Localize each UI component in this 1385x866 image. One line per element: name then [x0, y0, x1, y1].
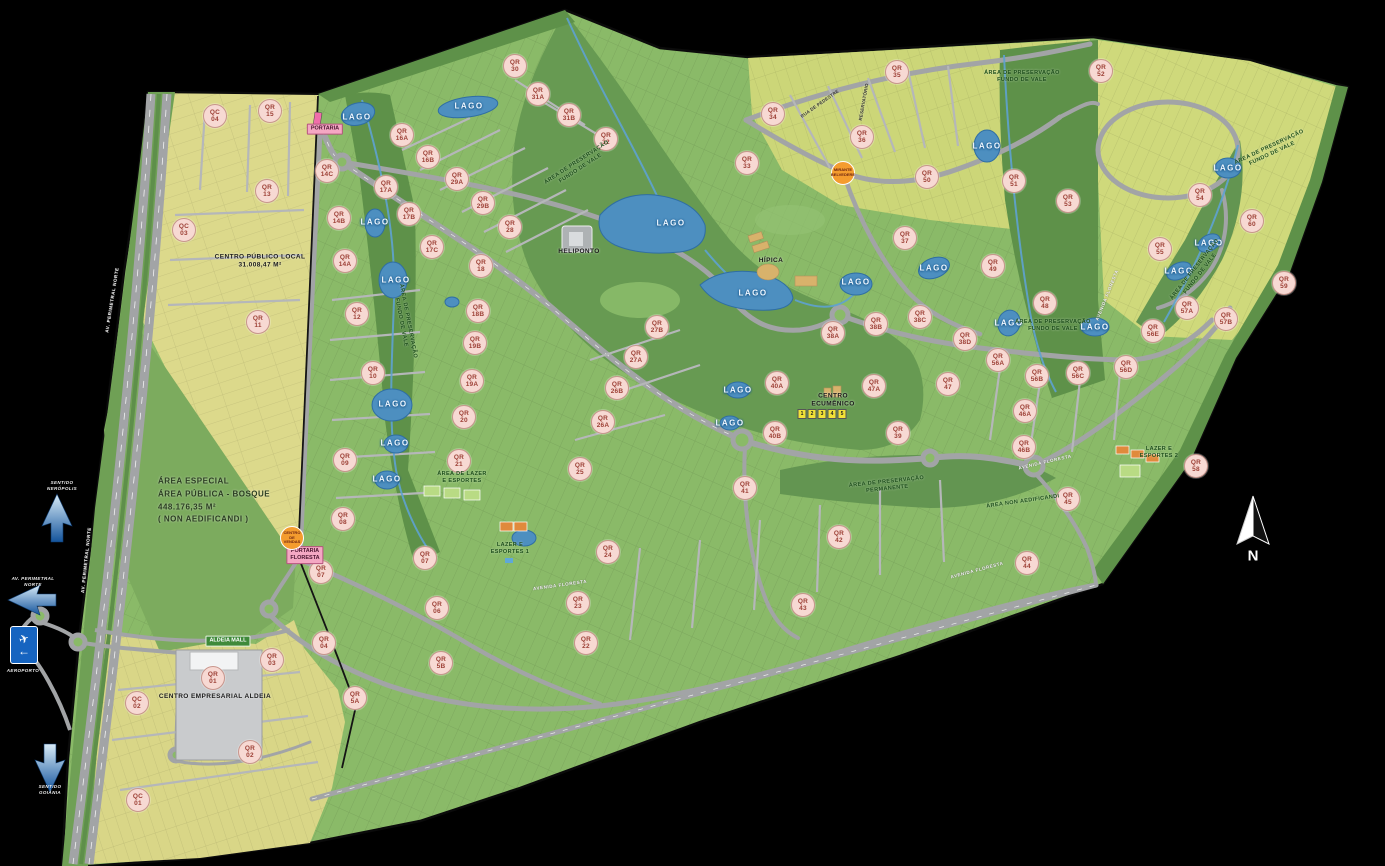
arrow-up-label: SENTIDO NERÓPOLIS: [47, 480, 77, 493]
quadra-marker-qr-18b-36: QR18B: [466, 299, 490, 323]
area-label: ÁREA DE PRESERVAÇÃO FUNDO DE VALE: [390, 284, 418, 361]
quadra-marker-qr-55-77: QR55: [1148, 237, 1172, 261]
quadra-marker-qr-58-85: QR58: [1184, 454, 1208, 478]
quadra-marker-qr-38b-61: QR38B: [864, 312, 888, 336]
quadra-marker-qr-18-35: QR18: [469, 254, 493, 278]
street-name-label: AVENIDA FLORESTA: [1094, 269, 1119, 321]
quadra-marker-qr-30-31: QR30: [503, 54, 527, 78]
quadra-marker-qr-28-30: QR28: [498, 215, 522, 239]
quadra-marker-qr-40a-65: QR40A: [765, 371, 789, 395]
quadra-marker-qr-01-20: QR01: [201, 666, 225, 690]
quadra-marker-qr-48-59: QR48: [1033, 291, 1057, 315]
quadra-marker-qr-09-10: QR09: [333, 448, 357, 472]
quadra-marker-qr-37-53: QR37: [893, 226, 917, 250]
quadra-marker-qr-33-49: QR33: [735, 151, 759, 175]
quadra-marker-qr-14b-6: QR14B: [327, 206, 351, 230]
quadra-marker-qr-03-18: QR03: [260, 648, 284, 672]
lake-label: LAGO: [360, 218, 389, 227]
quadra-marker-qr-02-19: QR02: [238, 740, 262, 764]
lake-label: LAGO: [380, 439, 409, 448]
quadra-marker-qr-56b-79: QR56B: [1025, 364, 1049, 388]
quadra-marker-qr-14c-5: QR14C: [315, 159, 339, 183]
lake-label: LAGO: [972, 142, 1001, 151]
lake-label: LAGO: [454, 102, 483, 111]
quadra-marker-qr-57b-84: QR57B: [1214, 307, 1238, 331]
area-label: ÁREA NON AEDIFICANDI: [986, 493, 1060, 510]
quadra-marker-qr-35-51: QR35: [885, 60, 909, 84]
street-name-label: AVENIDA FLORESTA: [533, 579, 588, 592]
quadra-marker-qr-38d-63: QR38D: [953, 327, 977, 351]
compass-north-label: N: [1248, 548, 1259, 565]
quadra-marker-qr-59-86: QR59: [1272, 271, 1296, 295]
area-label: HÍPICA: [759, 257, 783, 265]
quadra-marker-qc-04-0: QC04: [203, 104, 227, 128]
quadra-marker-qr-27a-44: QR27A: [624, 345, 648, 369]
quadra-marker-qr-23-47: QR23: [566, 591, 590, 615]
quadra-marker-qr-52-56: QR52: [1089, 59, 1113, 83]
quadra-marker-qr-11-4: QR11: [246, 310, 270, 334]
quadra-marker-qr-46a-72: QR46A: [1013, 399, 1037, 423]
quadra-marker-qr-25-41: QR25: [568, 457, 592, 481]
lake-label: LAGO: [738, 289, 767, 298]
quadra-marker-qc-03-3: QC03: [172, 218, 196, 242]
lake-label: LAGO: [342, 113, 371, 122]
area-label: LAZER E ESPORTES 2: [1140, 446, 1179, 460]
quadra-marker-qr-56e-82: QR56E: [1141, 319, 1165, 343]
area-label: RESERVATÓRIO: [858, 83, 870, 121]
area-label: ÁREA DE PRESERVAÇÃO FUNDO DE VALE: [1234, 129, 1309, 174]
quadra-marker-qr-17b-26: QR17B: [397, 202, 421, 226]
area-label: ÁREA DE PRESERVAÇÃO FUNDO DE VALE: [543, 139, 614, 192]
quadra-marker-qr-14a-7: QR14A: [333, 249, 357, 273]
quadra-marker-qr-29b-29: QR29B: [471, 191, 495, 215]
quadra-marker-qr-31a-32: QR31A: [526, 82, 550, 106]
quadra-marker-qr-16a-23: QR16A: [390, 123, 414, 147]
quadra-marker-qr-60-87: QR60: [1240, 209, 1264, 233]
quadra-marker-qr-22-46: QR22: [574, 631, 598, 655]
quadra-marker-qr-17c-27: QR17C: [420, 235, 444, 259]
point-of-interest-marker: CENTRO DEVENDAS: [280, 526, 304, 550]
area-label: ÁREA DE PRESERVAÇÃO PERMANENTE: [849, 475, 926, 497]
quadra-marker-qr-42-68: QR42: [827, 525, 851, 549]
area-label: CENTRO EMPRESARIAL ALDEIA: [159, 693, 271, 701]
quadra-marker-qr-54-76: QR54: [1188, 183, 1212, 207]
lake-label: LAGO: [381, 276, 410, 285]
lake-label: LAGO: [656, 219, 685, 228]
quadra-marker-qr-46b-73: QR46B: [1012, 435, 1036, 459]
quadra-marker-qr-07-13: QR07: [413, 546, 437, 570]
quadra-marker-qc-01-22: QC01: [126, 788, 150, 812]
quadra-marker-qr-50-54: QR50: [915, 165, 939, 189]
quadra-marker-qr-27b-45: QR27B: [645, 315, 669, 339]
area-label: ÁREA DE PRESERVAÇÃO FUNDO DE VALE: [984, 70, 1060, 84]
quadra-marker-qr-08-11: QR08: [331, 507, 355, 531]
street-name-label: AV. PERIMETRAL NORTE: [104, 267, 119, 333]
quadra-marker-qr-29a-28: QR29A: [445, 167, 469, 191]
quadra-marker-qr-38c-62: QR38C: [908, 305, 932, 329]
quadra-marker-qr-36-52: QR36: [850, 125, 874, 149]
quadra-marker-qr-5b-15: QR5B: [429, 651, 453, 675]
airport-sign-label: AEROPORTO: [7, 668, 39, 674]
quadra-marker-qr-12-8: QR12: [345, 302, 369, 326]
quadra-marker-qr-10-9: QR10: [361, 361, 385, 385]
area-label: ÁREA DE LAZER E ESPORTES: [437, 471, 487, 485]
quadra-marker-qr-20-39: QR20: [452, 405, 476, 429]
quadra-marker-qr-04-17: QR04: [312, 631, 336, 655]
lake-label: LAGO: [919, 264, 948, 273]
quadra-marker-qr-39-64: QR39: [886, 421, 910, 445]
quadra-marker-qc-02-21: QC02: [125, 691, 149, 715]
area-label: CENTRO ECUMÊNICO: [811, 393, 854, 410]
area-label: RUA DE PEDESTRE: [800, 89, 841, 120]
lake-label: LAGO: [723, 386, 752, 395]
quadra-marker-qr-38a-60: QR38A: [821, 321, 845, 345]
quadra-marker-qr-47a-74: QR47A: [862, 374, 886, 398]
arrow-left-label: AV. PERIMETRAL NORTE: [12, 576, 55, 589]
quadra-marker-qr-44-70: QR44: [1015, 551, 1039, 575]
quadra-marker-qr-56c-80: QR56C: [1066, 361, 1090, 385]
quadra-marker-qr-13-2: QR13: [255, 179, 279, 203]
quadra-marker-qr-24-48: QR24: [596, 540, 620, 564]
arrow-down-label: SENTIDO GOIÂNIA: [39, 784, 62, 797]
quadra-marker-qr-41-67: QR41: [733, 476, 757, 500]
area-label: ÁREA ESPECIAL ÁREA PÚBLICA - BOSQUE 448.…: [158, 475, 270, 526]
quadra-marker-qr-56d-81: QR56D: [1114, 355, 1138, 379]
quadra-marker-qr-26b-43: QR26B: [605, 376, 629, 400]
lake-label: LAGO: [378, 400, 407, 409]
quadra-marker-qr-56a-78: QR56A: [986, 348, 1010, 372]
quadra-marker-qr-51-55: QR51: [1002, 169, 1026, 193]
area-label: HELIPONTO: [558, 248, 599, 256]
area-label: LAZER E ESPORTES 1: [491, 542, 530, 556]
ecumenico-lot-boxes: 12345: [798, 409, 847, 419]
quadra-marker-qr-49-58: QR49: [981, 254, 1005, 278]
quadra-marker-qr-47-75: QR47: [936, 372, 960, 396]
street-name-label: AVENIDA FLORESTA: [950, 561, 1004, 580]
quadra-marker-qr-16b-24: QR16B: [416, 145, 440, 169]
quadra-marker-qr-43-69: QR43: [791, 593, 815, 617]
point-of-interest-marker: MIRANTEBELVEDERE: [831, 161, 855, 185]
lake-label: LAGO: [372, 475, 401, 484]
quadra-marker-qr-19b-37: QR19B: [463, 331, 487, 355]
quadra-marker-qr-26a-42: QR26A: [591, 410, 615, 434]
lake-label: LAGO: [715, 419, 744, 428]
quadra-marker-qr-06-14: QR06: [425, 596, 449, 620]
quadra-marker-qr-40b-66: QR40B: [763, 421, 787, 445]
area-label: ÁREA DE PRESERVAÇÃO FUNDO DE VALE: [1015, 319, 1091, 333]
area-label: CENTRO PÚBLICO LOCAL 31.008,47 M²: [215, 254, 306, 271]
quadra-marker-qr-15-1: QR15: [258, 99, 282, 123]
quadra-marker-qr-21-40: QR21: [447, 449, 471, 473]
quadra-marker-qr-5a-16: QR5A: [343, 686, 367, 710]
masterplan-map: ✈ ← N SENTIDO NERÓPOLIS AV. PERIMETRAL N…: [0, 0, 1385, 866]
info-chip: PORTARIA: [307, 124, 343, 135]
street-name-label: AV. PERIMETRAL NORTE: [80, 527, 92, 593]
quadra-marker-qr-17a-25: QR17A: [374, 175, 398, 199]
info-chip: ALDEIA MALL: [205, 636, 250, 647]
quadra-marker-qr-19a-38: QR19A: [460, 369, 484, 393]
lake-label: LAGO: [841, 278, 870, 287]
quadra-marker-qr-53-57: QR53: [1056, 189, 1080, 213]
quadra-marker-qr-34-50: QR34: [761, 102, 785, 126]
quadra-marker-qr-31b-33: QR31B: [557, 103, 581, 127]
map-labels-layer: N SENTIDO NERÓPOLIS AV. PERIMETRAL NORTE…: [0, 0, 1385, 866]
